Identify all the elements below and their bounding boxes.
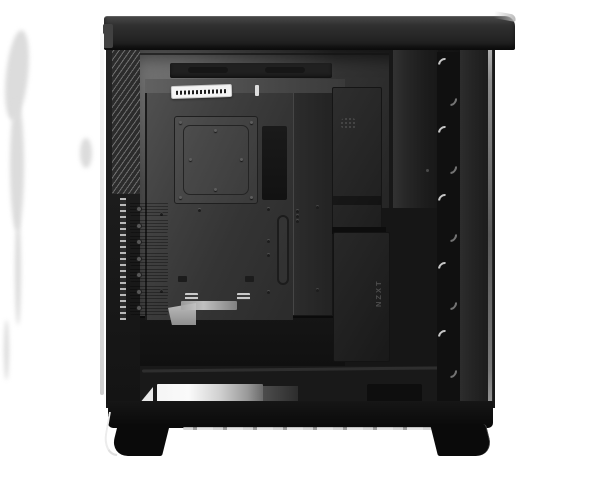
screw-dot bbox=[198, 209, 201, 212]
fan-blade-highlight bbox=[440, 89, 460, 109]
nzxt-dotted-logo-icon bbox=[340, 117, 357, 130]
ground-reflection-line bbox=[183, 427, 449, 430]
tray-recessed-step bbox=[293, 93, 332, 315]
rail-slot bbox=[265, 67, 305, 73]
pci-slot-cover bbox=[130, 285, 168, 299]
screw-dot bbox=[426, 169, 429, 172]
background-smudge bbox=[4, 320, 9, 380]
fan-blade-highlight bbox=[440, 293, 460, 313]
fan-blade-highlight bbox=[437, 327, 455, 347]
background-smudge bbox=[10, 100, 24, 230]
fan-blade-highlight bbox=[440, 225, 460, 245]
screw-dot bbox=[316, 206, 319, 209]
cable-opening bbox=[262, 126, 287, 200]
top-fan-rail bbox=[170, 63, 332, 78]
pci-slot-cover bbox=[130, 268, 168, 282]
velcro-strap bbox=[181, 301, 237, 310]
screw-dot bbox=[189, 158, 192, 161]
rear-vent-grille bbox=[112, 44, 140, 194]
screw-dot bbox=[250, 121, 253, 124]
screw-dot bbox=[316, 289, 319, 292]
fan-blade-highlight bbox=[437, 191, 455, 211]
rear-screw-strip bbox=[120, 198, 126, 320]
pci-slot-cover bbox=[130, 202, 168, 216]
cable-routing-slot bbox=[277, 215, 289, 285]
thumbscrew-icon bbox=[136, 289, 142, 295]
screw-dot bbox=[250, 196, 253, 199]
cable-tab bbox=[245, 276, 254, 282]
rail-slot bbox=[188, 67, 228, 73]
pci-slot-cover bbox=[130, 235, 168, 249]
pci-slot-cover bbox=[130, 252, 168, 266]
fan-blade-highlight bbox=[437, 259, 455, 279]
thumbscrew-icon bbox=[136, 239, 142, 245]
cable-clip bbox=[237, 293, 250, 300]
pci-slot-cover bbox=[130, 301, 168, 315]
cable-tie-dot bbox=[296, 210, 299, 213]
spec-sticker bbox=[171, 84, 232, 99]
screw-dot bbox=[267, 240, 270, 243]
front-panel-edge-highlight bbox=[488, 23, 492, 409]
fan-blade-highlight bbox=[437, 55, 455, 75]
glass-mount-tab bbox=[103, 24, 113, 48]
cpu-cutout-plate bbox=[174, 116, 258, 204]
front-foot bbox=[430, 424, 494, 456]
thumbscrew-icon bbox=[136, 256, 142, 262]
product-photo-canvas: NZXT bbox=[0, 0, 600, 480]
screw-dot bbox=[267, 291, 270, 294]
glass-edge-highlight bbox=[100, 33, 104, 395]
screw-dot bbox=[179, 196, 182, 199]
thumbscrew-icon bbox=[136, 206, 142, 212]
sticker-microtext bbox=[176, 89, 226, 95]
thumbscrew-icon bbox=[136, 223, 142, 229]
cage-seam bbox=[333, 196, 381, 205]
screw-dot bbox=[214, 188, 217, 191]
fan-blade-highlight bbox=[440, 157, 460, 177]
cable-tie-dot bbox=[296, 215, 299, 218]
thumbscrew-icon bbox=[136, 305, 142, 311]
nzxt-vertical-logo: NZXT bbox=[374, 272, 387, 314]
screw-dot bbox=[267, 254, 270, 257]
background-smudge bbox=[80, 138, 92, 168]
front-fan-column bbox=[437, 52, 460, 402]
drive-cage-upper bbox=[332, 87, 382, 229]
pci-slot-cover bbox=[130, 219, 168, 233]
reflection-tick bbox=[255, 85, 259, 96]
cable-tie-dot bbox=[296, 220, 299, 223]
background-smudge bbox=[15, 215, 21, 325]
top-panel bbox=[104, 16, 515, 50]
psu-vent-recess bbox=[367, 384, 422, 402]
screw-dot bbox=[179, 121, 182, 124]
cable-tab bbox=[178, 276, 187, 282]
screw-dot bbox=[267, 208, 270, 211]
pci-slot-stack bbox=[130, 202, 168, 322]
screw-dot bbox=[214, 129, 217, 132]
cable-clip bbox=[185, 293, 198, 300]
fan-blade-highlight bbox=[440, 361, 460, 381]
fan-blade-highlight bbox=[437, 123, 455, 143]
thumbscrew-icon bbox=[136, 272, 142, 278]
screw-dot bbox=[240, 158, 243, 161]
